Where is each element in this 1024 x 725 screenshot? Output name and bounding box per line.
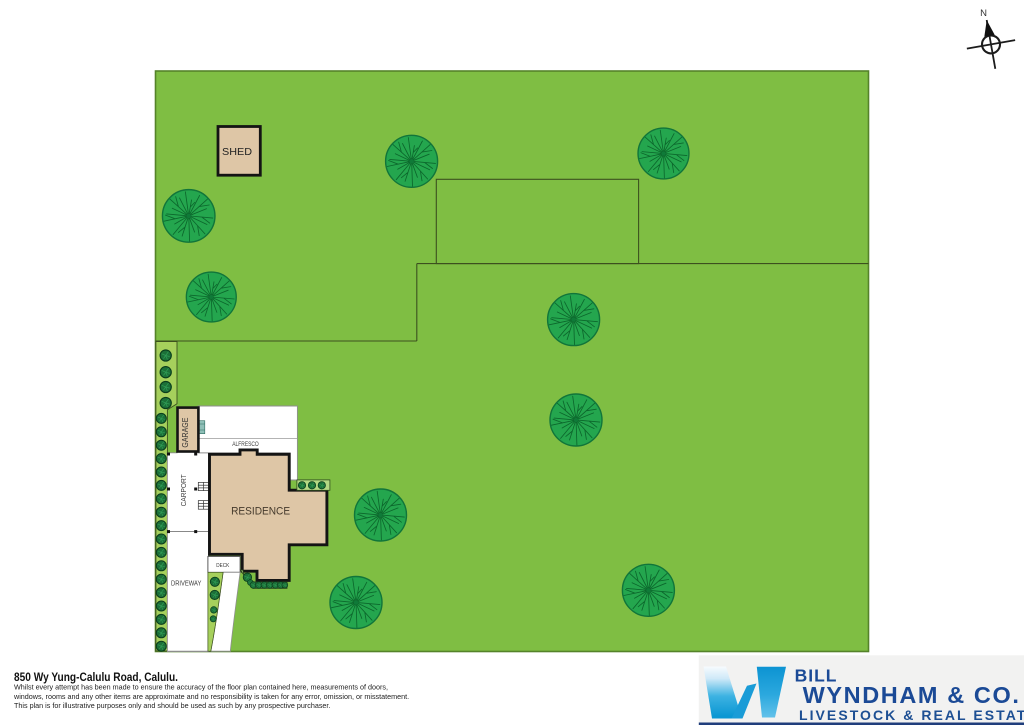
svg-text:CARPORT: CARPORT — [179, 474, 188, 506]
svg-text:This plan is for illustrative: This plan is for illustrative purposes o… — [14, 701, 330, 710]
svg-text:LIVESTOCK & REAL ESTATE: LIVESTOCK & REAL ESTATE — [799, 707, 1024, 723]
svg-text:SHED: SHED — [222, 146, 252, 158]
svg-text:ALFRESCO: ALFRESCO — [232, 442, 259, 448]
svg-text:DECK: DECK — [216, 563, 229, 569]
svg-text:RESIDENCE: RESIDENCE — [231, 505, 290, 517]
svg-text:DRIVEWAY: DRIVEWAY — [171, 578, 202, 587]
svg-text:windows, rooms and any other i: windows, rooms and any other items are a… — [13, 692, 409, 701]
svg-text:GARAGE: GARAGE — [180, 417, 190, 447]
svg-text:N: N — [980, 8, 987, 19]
svg-text:Whilst every attempt has been: Whilst every attempt has been made to en… — [14, 683, 388, 692]
svg-text:WYNDHAM & CO.: WYNDHAM & CO. — [803, 682, 1021, 708]
